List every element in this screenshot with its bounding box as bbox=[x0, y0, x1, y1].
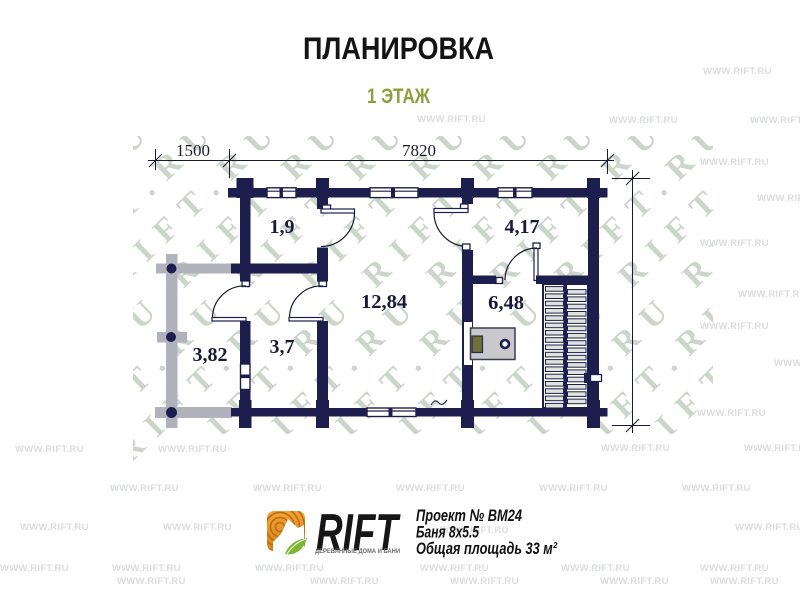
svg-text:WWW.RIFT.RU: WWW.RIFT.RU bbox=[253, 483, 322, 494]
svg-text:WWW.RIFT.RU: WWW.RIFT.RU bbox=[20, 522, 89, 533]
svg-text:Общая площадь 33 м²: Общая площадь 33 м² bbox=[416, 539, 558, 558]
svg-text:WWW.RIFT.RU: WWW.RIFT.RU bbox=[710, 576, 779, 587]
svg-text:WWW.RIFT.RU: WWW.RIFT.RU bbox=[539, 483, 608, 494]
svg-text:3,7: 3,7 bbox=[270, 336, 295, 358]
svg-text:WWW.RIFT.RU: WWW.RIFT.RU bbox=[158, 444, 227, 455]
svg-text:WWW.RIFT.RU: WWW.RIFT.RU bbox=[738, 289, 800, 300]
svg-text:4,17: 4,17 bbox=[505, 216, 540, 238]
svg-text:WWW.RIFT.RU: WWW.RIFT.RU bbox=[396, 483, 465, 494]
svg-text:WWW.RIFT.RU: WWW.RIFT.RU bbox=[450, 576, 519, 587]
svg-text:WWW.RIFT.RU: WWW.RIFT.RU bbox=[700, 157, 769, 168]
svg-text:WWW.RIFT.RU: WWW.RIFT.RU bbox=[0, 563, 69, 574]
svg-text:7820: 7820 bbox=[402, 141, 436, 160]
svg-text:WWW.RIFT.RU: WWW.RIFT.RU bbox=[774, 358, 800, 369]
svg-text:12,84: 12,84 bbox=[361, 291, 407, 313]
svg-text:WWW.RIFT.RU: WWW.RIFT.RU bbox=[255, 563, 324, 574]
svg-text:WWW.RIFT.RU: WWW.RIFT.RU bbox=[697, 408, 766, 419]
svg-text:WWW.RIFT.RU: WWW.RIFT.RU bbox=[601, 443, 670, 454]
svg-text:WWW.RIFT.RU: WWW.RIFT.RU bbox=[600, 576, 669, 587]
svg-text:3,82: 3,82 bbox=[193, 344, 228, 366]
svg-text:WWW.RIFT.RU: WWW.RIFT.RU bbox=[417, 114, 486, 125]
svg-text:WWW.RIFT.RU: WWW.RIFT.RU bbox=[609, 115, 678, 126]
svg-text:1 ЭТАЖ: 1 ЭТАЖ bbox=[367, 85, 431, 108]
svg-text:WWW.RIFT.RU: WWW.RIFT.RU bbox=[682, 483, 751, 494]
svg-text:ПЛАНИРОВКА: ПЛАНИРОВКА bbox=[303, 30, 494, 66]
svg-text:WWW.RIFT.RU: WWW.RIFT.RU bbox=[163, 522, 232, 533]
svg-text:1500: 1500 bbox=[176, 141, 210, 160]
svg-text:WWW.RIFT.RU: WWW.RIFT.RU bbox=[700, 321, 769, 332]
svg-text:WWW.RIFT.RU: WWW.RIFT.RU bbox=[744, 443, 800, 454]
svg-text:1,9: 1,9 bbox=[270, 216, 295, 238]
svg-text:WWW.RIFT.RU: WWW.RIFT.RU bbox=[700, 238, 769, 249]
svg-text:WWW.RIFT.RU: WWW.RIFT.RU bbox=[117, 576, 186, 587]
svg-text:WWW.RIFT.RU: WWW.RIFT.RU bbox=[112, 563, 181, 574]
svg-text:WWW.RIFT.RU: WWW.RIFT.RU bbox=[15, 444, 84, 455]
svg-text:WWW.RIFT.RU: WWW.RIFT.RU bbox=[420, 563, 489, 574]
svg-text:WWW.RIFT.RU: WWW.RIFT.RU bbox=[757, 193, 800, 204]
svg-text:WWW.RIFT.RU: WWW.RIFT.RU bbox=[750, 115, 800, 126]
svg-text:RIFT.RU RIFT.RU RIFT.RU RIFT.R: RIFT.RU RIFT.RU RIFT.RU RIFT.RU RIFT.RU bbox=[0, 0, 526, 591]
svg-text:WWW.RIFT.RU: WWW.RIFT.RU bbox=[700, 563, 769, 574]
svg-text:WWW.RIFT.RU: WWW.RIFT.RU bbox=[110, 483, 179, 494]
svg-text:WWW.RIFT.RU: WWW.RIFT.RU bbox=[735, 522, 800, 533]
svg-text:WWW.RIFT.RU: WWW.RIFT.RU bbox=[310, 576, 379, 587]
svg-text:6,48: 6,48 bbox=[488, 292, 524, 314]
svg-text:WWW.RIFT.RU: WWW.RIFT.RU bbox=[703, 66, 772, 77]
svg-text:ДЕРЕВЯННЫЕ ДОМА И БАНИ: ДЕРЕВЯННЫЕ ДОМА И БАНИ bbox=[315, 548, 400, 555]
svg-text:WWW.RIFT.RU: WWW.RIFT.RU bbox=[561, 563, 630, 574]
